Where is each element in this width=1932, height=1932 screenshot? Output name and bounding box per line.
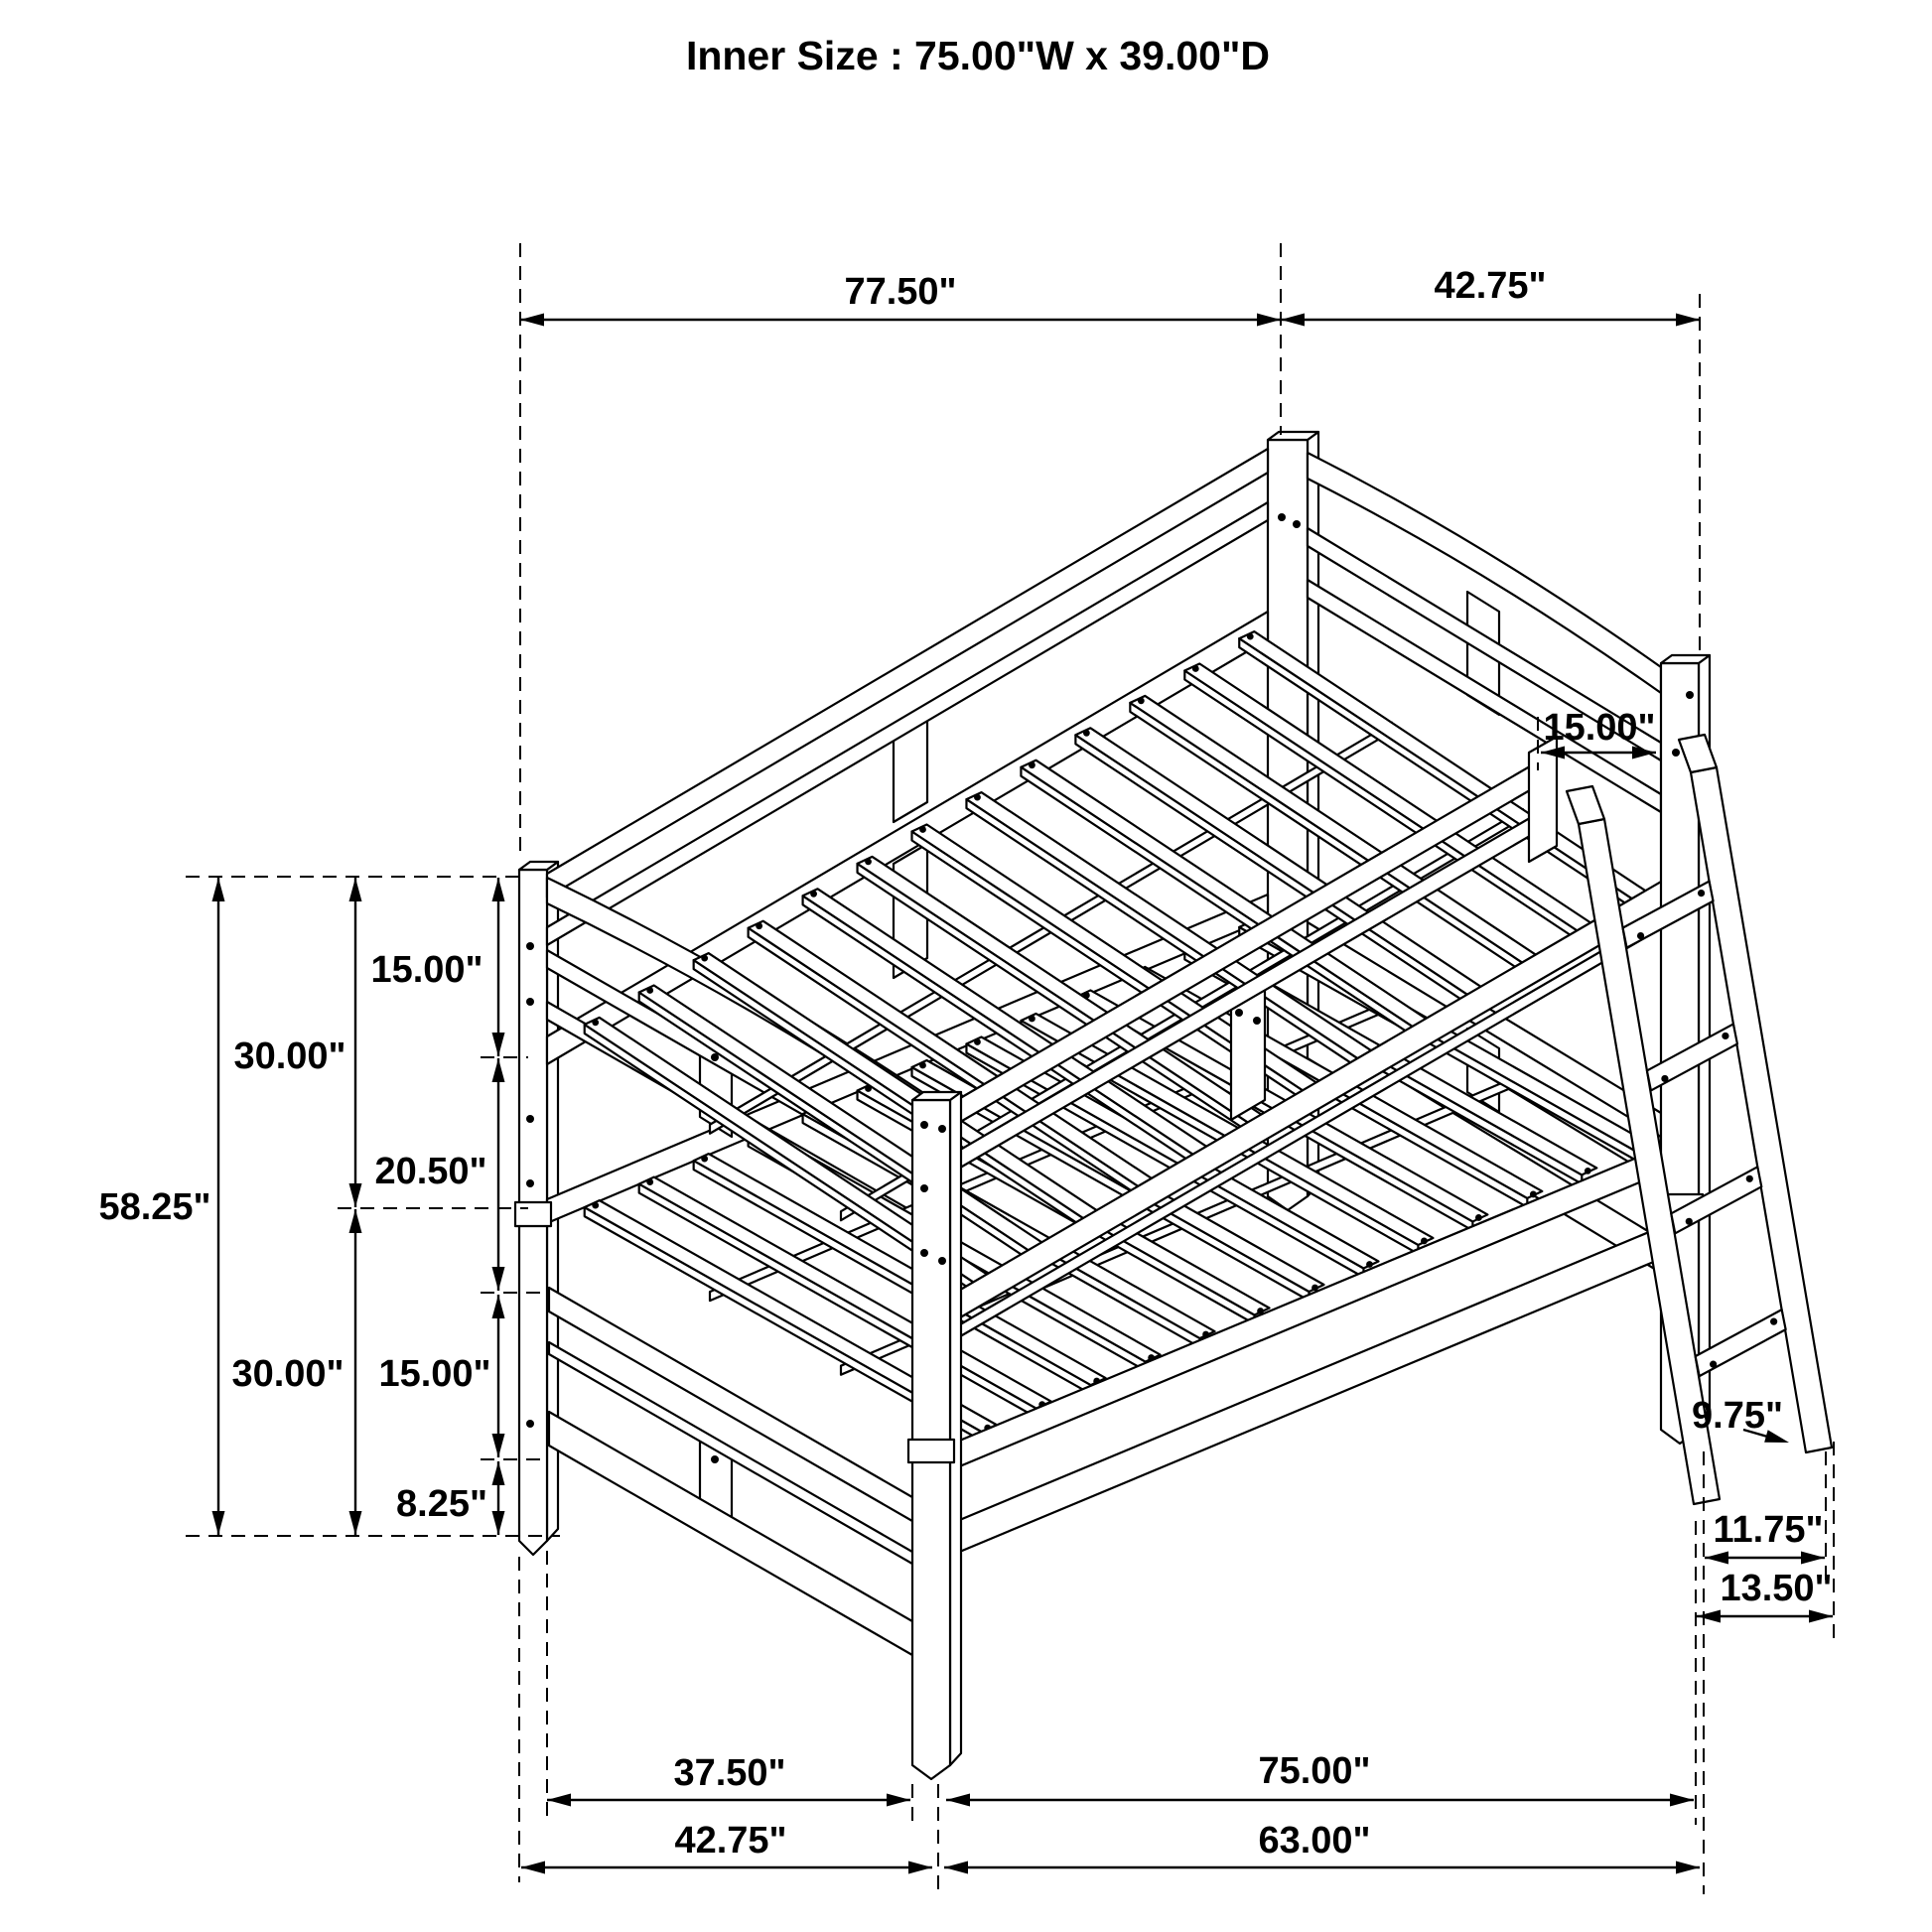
diagram-canvas: Inner Size : 75.00"W x 39.00"D 77.50" 42…	[0, 0, 1932, 1932]
dim-label-bunk-gap: 20.50"	[374, 1151, 486, 1192]
dim-label-bottom-clearance: 8.25"	[396, 1483, 487, 1525]
bunk-bed-dimension-diagram: Inner Size : 75.00"W x 39.00"D 77.50" 42…	[0, 0, 1932, 1932]
bed-wireframe-and-dimension-lines	[186, 243, 1834, 1894]
dim-label-lower-rail-height: 15.00"	[378, 1353, 490, 1395]
dim-label-bottom-inner-left: 37.50"	[673, 1752, 785, 1794]
dim-label-bottom-depth: 42.75"	[674, 1820, 786, 1862]
dim-label-ladder-opening: 15.00"	[1543, 707, 1655, 749]
dim-label-ladder-inner-width: 11.75"	[1713, 1509, 1823, 1551]
diagram-title: Inner Size : 75.00"W x 39.00"D	[686, 33, 1270, 78]
dim-label-total-height: 58.25"	[98, 1186, 210, 1228]
dim-label-upper-rail-height: 15.00"	[370, 949, 483, 991]
dim-label-lower-half-height: 30.00"	[231, 1353, 344, 1395]
dim-label-ladder-outer-width: 13.50"	[1720, 1568, 1832, 1609]
dim-label-bottom-inner-right: 63.00"	[1258, 1820, 1370, 1862]
dim-label-upper-half-height: 30.00"	[233, 1035, 345, 1077]
dim-label-overall-depth: 42.75"	[1434, 265, 1546, 307]
dim-label-overall-length: 77.50"	[844, 271, 956, 313]
dim-label-rung-spacing: 9.75"	[1692, 1395, 1783, 1437]
dim-label-bottom-length: 75.00"	[1258, 1750, 1370, 1792]
